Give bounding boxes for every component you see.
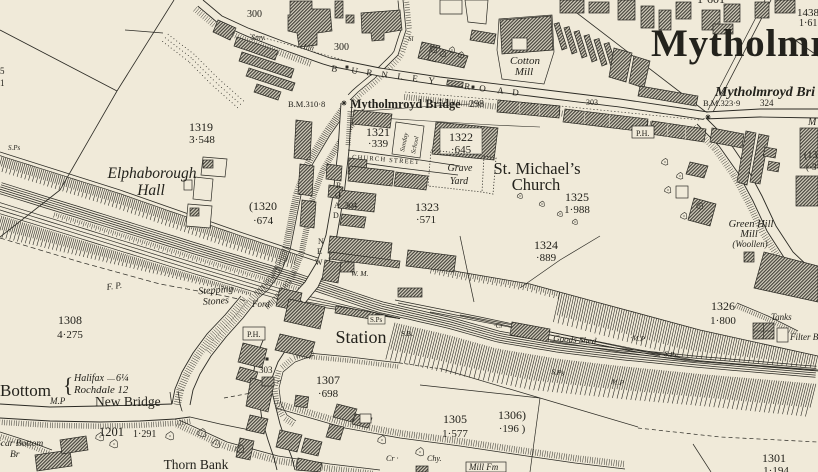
svg-text:Chy.: Chy. [427,454,441,463]
svg-text:·571: ·571 [416,214,436,226]
svg-text:1·291: 1·291 [133,429,156,440]
svg-text:1·194: 1·194 [763,465,789,472]
svg-text:1306): 1306) [498,408,526,422]
svg-text:1·577: 1·577 [442,428,468,440]
svg-text:S.B.: S.B. [401,330,413,338]
svg-text:Bottom: Bottom [0,381,51,400]
svg-text:1·61: 1·61 [799,18,817,29]
svg-text:·Cr: ·Cr [494,322,503,330]
svg-text:1326: 1326 [711,299,735,313]
svg-text:E: E [317,247,322,256]
svg-text:....: .... [107,373,115,382]
svg-text:N: N [318,237,324,246]
svg-text:1305: 1305 [443,412,467,426]
svg-text:·889: ·889 [536,252,557,264]
svg-text:{: { [63,373,73,397]
svg-text:1301: 1301 [762,451,786,465]
svg-text:·M.P: ·M.P [630,333,646,344]
svg-text:1324: 1324 [534,238,558,252]
svg-text:M.P: M.P [49,396,66,406]
svg-text:B.M.310·8: B.M.310·8 [288,99,325,109]
svg-text:Mill: Mill [514,66,533,78]
svg-text:Ford: Ford [251,299,270,309]
svg-text:S.Ps: S.Ps [551,367,565,377]
svg-text:Smy.: Smy. [251,33,266,42]
svg-text:S.Ps: S.Ps [8,144,21,152]
svg-text:Thorn Bank: Thorn Bank [164,457,229,472]
svg-text:Elphaborough: Elphaborough [107,165,197,182]
svg-text:M.P: M.P [610,377,625,387]
svg-text:300: 300 [334,42,349,53]
svg-text:1·800: 1·800 [710,315,736,327]
svg-text:Stones: Stones [202,295,229,308]
svg-text:(13: (13 [804,150,817,161]
svg-text:3·548: 3·548 [189,134,215,146]
svg-text:·339: ·339 [368,138,389,150]
svg-text:New Bridge: New Bridge [95,394,161,409]
svg-text:A: A [334,201,340,210]
svg-text:S.Ps: S.Ps [370,316,383,324]
svg-text:B.M.323·9: B.M.323·9 [703,98,740,108]
svg-text:1323: 1323 [415,200,439,214]
svg-text:Cr ·: Cr · [386,454,398,463]
svg-text:·674: ·674 [253,215,274,227]
svg-text:D: D [333,211,339,220]
svg-text:Grave: Grave [448,163,474,174]
svg-text:Inn: Inn [302,42,315,53]
svg-text:Church: Church [512,175,561,194]
svg-text:303: 303 [259,365,273,375]
svg-text:1201: 1201 [99,425,124,439]
svg-text:Mill Fm: Mill Fm [468,462,499,472]
svg-text:1322: 1322 [449,130,473,144]
svg-text:R: R [464,81,471,92]
svg-text:298: 298 [469,99,484,110]
svg-text:Hall: Hall [136,182,165,199]
svg-text:Scar Bottom: Scar Bottom [0,439,43,449]
svg-text:300: 300 [247,9,262,20]
svg-text:Mytholmr: Mytholmr [651,22,818,65]
svg-text:1319: 1319 [189,120,213,134]
svg-text:Tanks: Tanks [771,312,792,322]
svg-text:303: 303 [586,98,598,107]
svg-text:M: M [807,117,817,128]
svg-text:1·988: 1·988 [564,204,590,216]
svg-text:·196 ): ·196 ) [499,423,526,435]
svg-text:·698: ·698 [318,388,339,400]
svg-text:1·601: 1·601 [697,0,725,6]
svg-text:5: 5 [0,66,5,76]
svg-text:Br: Br [10,450,20,460]
svg-text:(Woollen): (Woollen) [732,239,767,249]
svg-text:P.H.: P.H. [247,330,260,339]
svg-text:R: R [336,181,342,190]
svg-text:W: W [315,258,323,267]
svg-text:1321: 1321 [366,125,390,139]
svg-text:1308: 1308 [58,313,82,327]
svg-text:Station: Station [335,327,386,347]
svg-text:324: 324 [760,98,774,108]
svg-text:1: 1 [0,78,5,88]
svg-text:O: O [335,191,341,200]
svg-text:W. M.: W. M. [351,269,369,278]
svg-text:6¼: 6¼ [116,373,129,384]
svg-text:S.Ps: S.Ps [664,349,678,359]
svg-text:304: 304 [345,201,357,210]
svg-text:(·3: (·3 [806,162,817,172]
svg-text:Filter B: Filter B [789,332,818,342]
svg-text:1307: 1307 [316,373,340,387]
svg-text:Halifax: Halifax [73,373,105,384]
svg-text:Mytholmroyd Bridge: Mytholmroyd Bridge [350,97,461,111]
svg-text:(1320: (1320 [249,199,277,213]
svg-text:Sl: Sl [408,35,414,43]
svg-text:Yard: Yard [450,176,469,187]
svg-text:4·275: 4·275 [57,329,83,341]
svg-text:P.H.: P.H. [636,129,649,138]
svg-text:1325: 1325 [565,190,589,204]
svg-text:·645: ·645 [451,144,472,156]
